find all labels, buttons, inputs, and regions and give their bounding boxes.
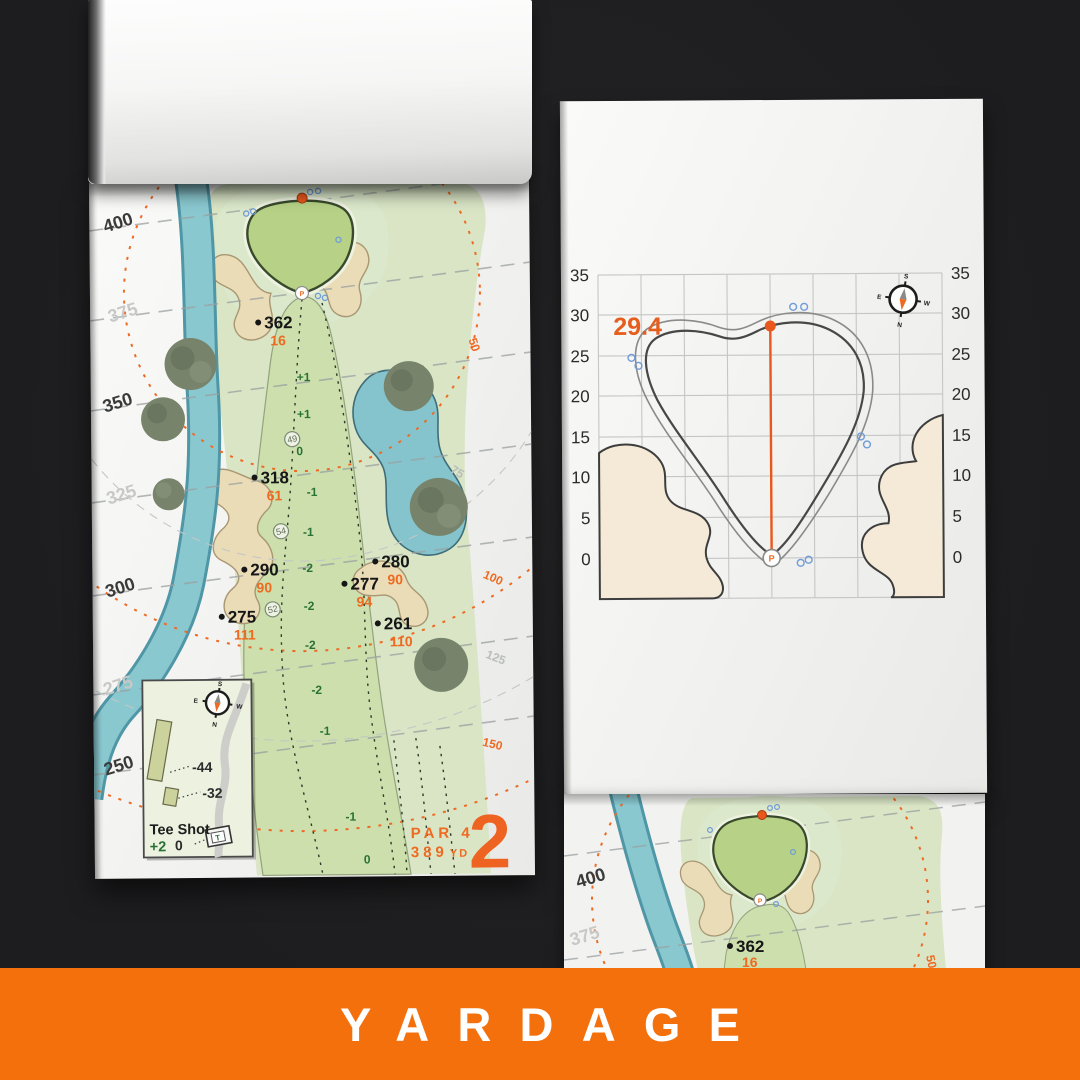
svg-text:275: 275	[228, 607, 257, 626]
inset-title: Tee Shot	[150, 822, 210, 839]
svg-text:49: 49	[286, 433, 298, 445]
band-label: 400	[573, 864, 608, 892]
bunker	[599, 444, 723, 599]
target: 275 111	[219, 607, 257, 642]
svg-text:94: 94	[357, 593, 373, 609]
next-page-preview: P 400 375 362 16 50	[564, 794, 985, 970]
svg-text:0: 0	[364, 852, 371, 866]
zero-marker-label: 0	[175, 837, 183, 853]
svg-text:-1: -1	[307, 485, 318, 499]
svg-text:0: 0	[953, 548, 963, 567]
hole-number: 2	[468, 799, 511, 879]
band-label: 300	[103, 573, 138, 601]
svg-text:110: 110	[390, 633, 413, 649]
compass-n: N	[897, 322, 903, 330]
y-axis-left: 35 30 25 20 15 10 5 0	[570, 266, 591, 569]
svg-text:61: 61	[267, 487, 283, 503]
front-depth-value: 29.4	[613, 313, 662, 341]
tee-length-label: -32	[202, 785, 223, 801]
compass-w: W	[923, 300, 931, 308]
svg-text:25: 25	[951, 345, 970, 364]
band-label: 400	[101, 208, 136, 236]
fold-shadow	[564, 794, 985, 806]
yards-unit: YD	[450, 848, 469, 860]
preview-map: P 400 375 362 16 50	[564, 794, 985, 970]
front-depth-line	[770, 326, 771, 552]
svg-text:277: 277	[350, 574, 379, 593]
pin-marker: P	[754, 894, 766, 906]
tree-icon	[410, 478, 469, 537]
tree-icon	[141, 397, 185, 441]
compass-icon: S N W E	[873, 270, 934, 333]
svg-text:-2: -2	[311, 683, 322, 697]
svg-text:P: P	[769, 553, 775, 563]
arc-label: 100	[481, 567, 505, 588]
inset-score: +2	[150, 839, 167, 855]
right-booklet: P 29.4 35 30 25 20 15	[560, 94, 986, 970]
svg-text:30: 30	[951, 304, 970, 323]
svg-text:90: 90	[387, 571, 403, 587]
svg-text:-1: -1	[345, 810, 356, 824]
svg-text:280: 280	[381, 552, 410, 571]
hole-map-page: P 400 375 350 325 300 275 250 50 75 100	[89, 179, 535, 879]
tee-shot-inset: -44 -32 0 T Tee Shot +2	[142, 677, 256, 860]
svg-text:318: 318	[260, 468, 289, 487]
svg-text:10: 10	[571, 468, 590, 487]
green-detail-page: P 29.4 35 30 25 20 15	[560, 99, 987, 796]
svg-text:+1: +1	[297, 370, 311, 384]
compass-e: E	[877, 294, 883, 302]
yardage-banner: YARDAGE	[0, 968, 1080, 1080]
svg-text:111: 111	[234, 626, 256, 642]
svg-text:-2: -2	[304, 599, 315, 613]
product-scene: P 400 375 350 325 300 275 250 50 75 100	[0, 0, 1080, 1080]
approach-dot	[297, 193, 307, 203]
hole-map: P 400 375 350 325 300 275 250 50 75 100	[89, 179, 535, 879]
svg-text:5: 5	[952, 507, 962, 526]
svg-text:362: 362	[264, 313, 293, 332]
tee-box	[163, 787, 179, 806]
svg-text:35: 35	[570, 266, 589, 285]
band-label: 375	[105, 298, 140, 326]
svg-text:5: 5	[581, 509, 591, 528]
front-edge-dot	[765, 320, 776, 331]
par-label: PAR 4	[411, 825, 474, 843]
banner-title: YARDAGE	[312, 997, 768, 1052]
svg-text:20: 20	[952, 385, 971, 404]
svg-text:54: 54	[275, 525, 287, 537]
y-axis-right: 35 30 25 20 15 10 5 0	[951, 264, 972, 567]
svg-text:10: 10	[952, 466, 971, 485]
svg-text:15: 15	[571, 428, 590, 447]
svg-text:+1: +1	[297, 407, 311, 421]
svg-text:90: 90	[256, 579, 272, 595]
svg-text:P: P	[300, 291, 305, 298]
arc-label: 125	[484, 647, 508, 667]
compass-s: S	[903, 273, 909, 281]
svg-text:20: 20	[571, 387, 590, 406]
tree-icon	[153, 478, 185, 510]
arc-label: 150	[481, 735, 504, 753]
flipped-blank-page	[88, 0, 532, 184]
svg-text:-2: -2	[305, 638, 316, 652]
svg-text:290: 290	[250, 560, 279, 579]
svg-text:15: 15	[952, 426, 971, 445]
svg-text:52: 52	[267, 603, 279, 615]
svg-text:261: 261	[384, 614, 413, 633]
svg-text:-1: -1	[320, 724, 331, 738]
tee-length-label: -44	[192, 759, 213, 775]
svg-text:-2: -2	[302, 561, 313, 575]
green-detail-chart: P 29.4 35 30 25 20 15	[560, 99, 987, 796]
tree-icon	[164, 338, 216, 390]
svg-text:P: P	[758, 898, 763, 905]
svg-text:35: 35	[951, 264, 970, 283]
svg-text:-1: -1	[303, 525, 314, 539]
left-booklet: P 400 375 350 325 300 275 250 50 75 100	[88, 0, 532, 882]
tree-icon	[414, 638, 468, 692]
band-label: 375	[567, 922, 602, 950]
svg-text:25: 25	[570, 347, 589, 366]
pin-marker: P	[763, 549, 780, 566]
svg-text:16: 16	[270, 332, 286, 348]
river-fill	[622, 794, 680, 970]
bunker	[861, 415, 944, 597]
pin-marker: P	[295, 287, 308, 300]
svg-text:30: 30	[570, 306, 589, 325]
band-label: 325	[104, 480, 139, 508]
tree-icon	[384, 361, 434, 411]
approach-dot	[758, 811, 767, 820]
yards-value: 389	[411, 844, 448, 861]
band-label: 350	[100, 389, 135, 417]
svg-text:0: 0	[296, 444, 303, 458]
page-curl-edge	[88, 0, 106, 184]
svg-text:0: 0	[581, 550, 591, 569]
